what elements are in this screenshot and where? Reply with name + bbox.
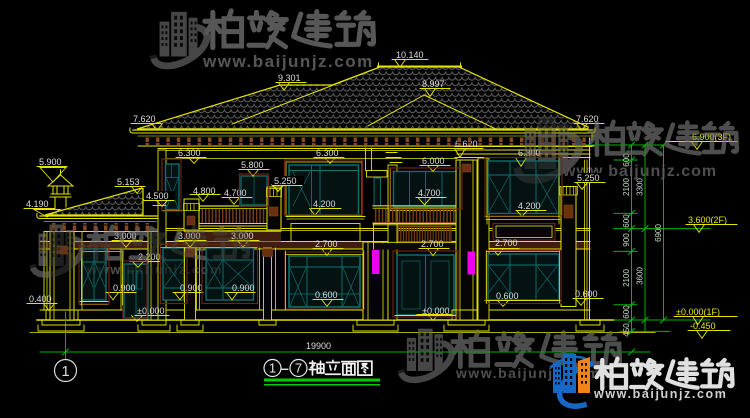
svg-text:0.600: 0.600 <box>575 289 598 299</box>
svg-text:2.700: 2.700 <box>421 239 444 249</box>
svg-text:1: 1 <box>61 363 69 380</box>
svg-text:450: 450 <box>622 323 631 337</box>
svg-text:4.700: 4.700 <box>418 188 441 198</box>
svg-text:1: 1 <box>269 361 276 376</box>
svg-text:±0.000: ±0.000 <box>137 306 164 316</box>
svg-text:www.baijunjz.com: www.baijunjz.com <box>593 387 727 401</box>
svg-text:5.800: 5.800 <box>241 160 264 170</box>
svg-text:2100: 2100 <box>622 178 631 196</box>
svg-text:–: – <box>281 360 289 376</box>
svg-text:6.000: 6.000 <box>422 156 445 166</box>
svg-text:600: 600 <box>622 214 631 228</box>
svg-text:900: 900 <box>622 233 631 247</box>
svg-text:7: 7 <box>295 361 302 376</box>
svg-text:6900: 6900 <box>654 224 663 242</box>
svg-text:5.250: 5.250 <box>274 176 297 186</box>
svg-text:6.300: 6.300 <box>178 148 201 158</box>
svg-text:0.400: 0.400 <box>29 294 52 304</box>
svg-text:8.997: 8.997 <box>422 79 445 89</box>
svg-text:19900: 19900 <box>306 341 331 351</box>
svg-text:600: 600 <box>622 305 631 319</box>
svg-text:9.301: 9.301 <box>278 73 301 83</box>
svg-text:4.200: 4.200 <box>313 199 336 209</box>
svg-text:0.600: 0.600 <box>496 291 519 301</box>
svg-text:5.153: 5.153 <box>117 177 140 187</box>
svg-text:±0.000(1F): ±0.000(1F) <box>676 307 720 317</box>
svg-text:5.250: 5.250 <box>577 173 600 183</box>
svg-text:2.700: 2.700 <box>495 238 518 248</box>
svg-text:4.700: 4.700 <box>224 188 247 198</box>
svg-text:4.190: 4.190 <box>26 199 49 209</box>
svg-text:3300: 3300 <box>636 178 645 196</box>
svg-text:3.600(2F): 3.600(2F) <box>688 215 727 225</box>
svg-text:3600: 3600 <box>636 267 645 285</box>
svg-text:7.620: 7.620 <box>133 114 156 124</box>
svg-text:10.140: 10.140 <box>396 50 424 60</box>
svg-text:2.700: 2.700 <box>315 239 338 249</box>
svg-text:2100: 2100 <box>622 269 631 287</box>
svg-text:4.200: 4.200 <box>518 201 541 211</box>
svg-text:4.500: 4.500 <box>146 191 169 201</box>
svg-text:-0.450: -0.450 <box>690 321 716 331</box>
svg-text:0.900: 0.900 <box>113 283 136 293</box>
svg-text:6.300: 6.300 <box>316 148 339 158</box>
svg-text:0.600: 0.600 <box>315 290 338 300</box>
svg-text:5.900: 5.900 <box>39 157 62 167</box>
svg-text:0.900: 0.900 <box>232 283 255 293</box>
